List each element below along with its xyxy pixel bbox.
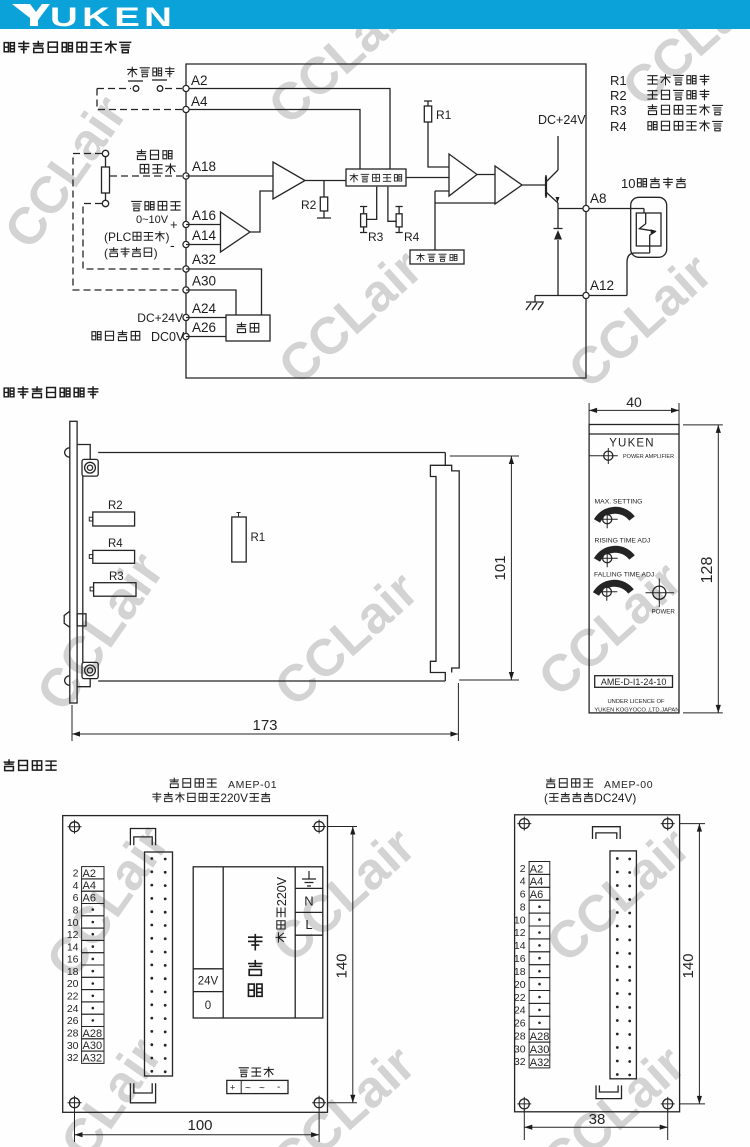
svg-text:A12: A12 bbox=[590, 278, 614, 293]
svg-text:L: L bbox=[305, 917, 312, 932]
svg-text:A14: A14 bbox=[192, 228, 217, 243]
svg-text:DC24V): DC24V) bbox=[594, 791, 636, 805]
svg-text:18: 18 bbox=[67, 966, 79, 978]
svg-text:R1: R1 bbox=[610, 73, 627, 88]
svg-text:CCLair: CCLair bbox=[264, 561, 430, 718]
svg-text:8: 8 bbox=[73, 904, 79, 916]
svg-text:2: 2 bbox=[73, 868, 79, 880]
svg-text:-: - bbox=[277, 1082, 280, 1093]
svg-text:2: 2 bbox=[520, 863, 526, 875]
svg-text:32: 32 bbox=[67, 1052, 79, 1064]
svg-text:28: 28 bbox=[514, 1031, 526, 1043]
svg-text:A2: A2 bbox=[191, 73, 208, 88]
svg-text:A30: A30 bbox=[530, 1044, 550, 1056]
svg-text:A2: A2 bbox=[83, 868, 96, 880]
svg-text:A28: A28 bbox=[83, 1028, 103, 1040]
svg-text:10: 10 bbox=[621, 176, 635, 191]
svg-text:R3: R3 bbox=[109, 571, 124, 583]
svg-text:26: 26 bbox=[514, 1018, 526, 1030]
svg-text:22: 22 bbox=[67, 991, 79, 1003]
svg-text:POWER: POWER bbox=[652, 609, 676, 616]
svg-text:6: 6 bbox=[73, 892, 79, 904]
svg-text:A30: A30 bbox=[83, 1040, 103, 1052]
svg-text:4: 4 bbox=[73, 880, 79, 892]
svg-text:YUKEN: YUKEN bbox=[609, 438, 655, 450]
svg-text:0~10V: 0~10V bbox=[136, 214, 169, 226]
svg-text:CCLair: CCLair bbox=[261, 1035, 427, 1147]
svg-text:DC+24V: DC+24V bbox=[538, 113, 586, 127]
svg-text:24: 24 bbox=[67, 1003, 79, 1015]
svg-text:100: 100 bbox=[187, 1117, 212, 1134]
svg-text:R2: R2 bbox=[301, 198, 317, 212]
svg-text:10: 10 bbox=[514, 914, 526, 926]
svg-text:CCLair: CCLair bbox=[558, 243, 724, 400]
svg-text:R4: R4 bbox=[610, 119, 627, 134]
svg-text:A28: A28 bbox=[530, 1031, 550, 1043]
svg-text:FALLING TIME ADJ: FALLING TIME ADJ bbox=[594, 572, 654, 579]
svg-text:38: 38 bbox=[589, 1111, 606, 1128]
svg-text:(PLC: (PLC bbox=[104, 230, 132, 244]
svg-text:A16: A16 bbox=[192, 208, 216, 223]
svg-text:R3: R3 bbox=[368, 230, 384, 244]
svg-text:20: 20 bbox=[67, 978, 79, 990]
svg-text:-: - bbox=[170, 237, 175, 253]
svg-text:A32: A32 bbox=[530, 1057, 550, 1069]
svg-text:A4: A4 bbox=[191, 94, 208, 109]
svg-text:A24: A24 bbox=[192, 301, 217, 316]
svg-text:UKEN: UKEN bbox=[50, 2, 176, 32]
svg-text:128: 128 bbox=[699, 557, 716, 584]
svg-text:173: 173 bbox=[252, 717, 277, 734]
svg-text:220V: 220V bbox=[275, 876, 289, 906]
svg-text:CCLair: CCLair bbox=[536, 817, 702, 974]
svg-text:CCLair: CCLair bbox=[268, 239, 434, 396]
svg-text:101: 101 bbox=[492, 555, 509, 580]
svg-text:A32: A32 bbox=[83, 1053, 103, 1065]
svg-text:A4: A4 bbox=[530, 876, 543, 888]
svg-text:CCLair: CCLair bbox=[531, 1035, 697, 1147]
svg-text:18: 18 bbox=[514, 966, 526, 978]
svg-text:A18: A18 bbox=[192, 159, 216, 174]
svg-text:DC+24V: DC+24V bbox=[137, 311, 183, 325]
svg-text:4: 4 bbox=[520, 876, 526, 888]
svg-text:A32: A32 bbox=[192, 252, 216, 267]
svg-text:16: 16 bbox=[514, 953, 526, 965]
svg-text:MAX. SETTING: MAX. SETTING bbox=[595, 499, 643, 506]
svg-text:24: 24 bbox=[514, 1005, 526, 1017]
svg-text:R1: R1 bbox=[251, 532, 266, 544]
svg-text:6: 6 bbox=[520, 889, 526, 901]
svg-text:28: 28 bbox=[67, 1028, 79, 1040]
svg-text:~: ~ bbox=[259, 1083, 265, 1094]
svg-text:AMEP-01: AMEP-01 bbox=[228, 779, 277, 791]
svg-text:CCLair: CCLair bbox=[25, 542, 176, 721]
svg-text:40: 40 bbox=[626, 394, 642, 410]
svg-text:YUKEN KOGYOCO.,LTD.JAPAN: YUKEN KOGYOCO.,LTD.JAPAN bbox=[594, 708, 679, 714]
svg-text:24V: 24V bbox=[198, 976, 219, 988]
svg-text:140: 140 bbox=[334, 953, 351, 978]
svg-text:20: 20 bbox=[514, 979, 526, 991]
svg-text:(: ( bbox=[544, 791, 548, 805]
svg-text:): ) bbox=[166, 230, 170, 244]
svg-text:A30: A30 bbox=[192, 274, 216, 289]
svg-text:8: 8 bbox=[520, 902, 526, 914]
svg-text:+: + bbox=[230, 1083, 235, 1093]
svg-text:14: 14 bbox=[514, 940, 526, 952]
svg-text:12: 12 bbox=[514, 927, 526, 939]
svg-text:(: ( bbox=[104, 246, 108, 260]
svg-text:140: 140 bbox=[680, 953, 697, 978]
svg-text:22: 22 bbox=[514, 992, 526, 1004]
svg-text:A4: A4 bbox=[83, 880, 96, 892]
svg-text:A6: A6 bbox=[83, 893, 96, 905]
svg-text:POWER AMPLIFIER: POWER AMPLIFIER bbox=[623, 454, 674, 460]
svg-text:AMEP-00: AMEP-00 bbox=[604, 779, 653, 791]
svg-text:A2: A2 bbox=[530, 863, 543, 875]
svg-text:R2: R2 bbox=[610, 88, 627, 103]
svg-text:R4: R4 bbox=[404, 230, 420, 244]
svg-text:A26: A26 bbox=[192, 320, 216, 335]
svg-text:~: ~ bbox=[245, 1083, 251, 1094]
svg-text:0: 0 bbox=[205, 1000, 211, 1012]
svg-text:A6: A6 bbox=[530, 889, 543, 901]
svg-text:+: + bbox=[170, 217, 178, 232]
svg-text:R3: R3 bbox=[610, 103, 627, 118]
svg-text:30: 30 bbox=[514, 1043, 526, 1055]
svg-text:R1: R1 bbox=[436, 108, 452, 122]
svg-text:A8: A8 bbox=[590, 191, 607, 206]
svg-text:14: 14 bbox=[67, 941, 79, 953]
svg-text:DC0V: DC0V bbox=[151, 330, 185, 344]
svg-text:AME-D-I1-24-10: AME-D-I1-24-10 bbox=[601, 677, 667, 687]
svg-text:10: 10 bbox=[67, 917, 79, 929]
svg-text:RISING TIME ADJ: RISING TIME ADJ bbox=[595, 538, 651, 545]
svg-text:30: 30 bbox=[67, 1040, 79, 1052]
svg-text:R2: R2 bbox=[108, 500, 123, 512]
svg-text:26: 26 bbox=[67, 1015, 79, 1027]
svg-text:UNDER LICENCE OF: UNDER LICENCE OF bbox=[607, 699, 664, 705]
svg-text:16: 16 bbox=[67, 954, 79, 966]
svg-text:R4: R4 bbox=[108, 538, 123, 550]
svg-text:12: 12 bbox=[67, 929, 79, 941]
svg-text:220V: 220V bbox=[220, 791, 248, 805]
svg-text:): ) bbox=[154, 246, 158, 260]
svg-text:32: 32 bbox=[514, 1056, 526, 1068]
svg-text:CCLair: CCLair bbox=[35, 816, 180, 989]
svg-text:N: N bbox=[304, 894, 313, 909]
